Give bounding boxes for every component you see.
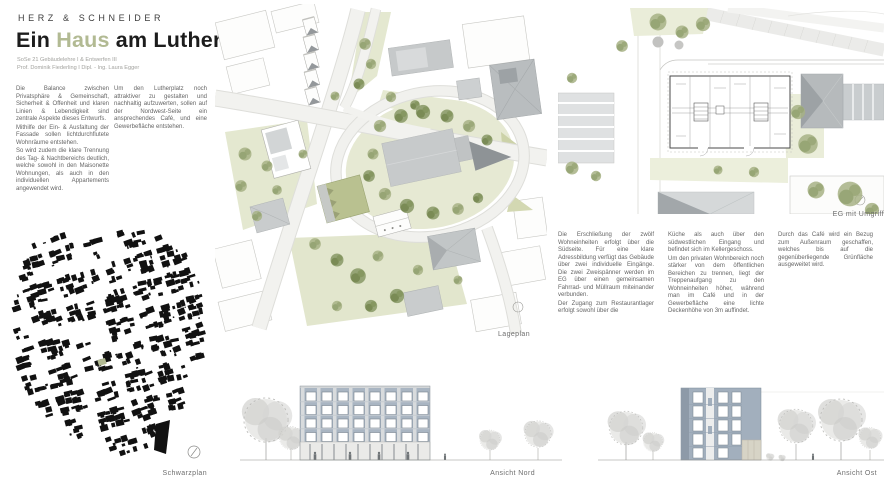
viaduct (688, 8, 884, 64)
figure-ground-label: Schwarzplan (60, 470, 207, 477)
presentation-board: HERZ & SCHNEIDER Ein Haus am Lutherplatz… (0, 0, 888, 500)
striped-building (558, 93, 614, 163)
elevation-north-figure (238, 372, 568, 468)
paragraph: Die Balance zwischen Privatsphäre & Geme… (16, 86, 109, 124)
title-part1: Ein (16, 28, 56, 52)
floorplan-label: EG mit Umgriff (700, 211, 884, 218)
paragraph: Durch das Café wird ein Bezug zum Außenr… (778, 232, 873, 270)
paragraph: Um den privaten Wohnbereich noch stärker… (668, 256, 764, 316)
title-accent-word: Haus (56, 28, 109, 52)
course-subtitle: SoSe 21 Gebäudelehre I & Entwerfen III P… (17, 56, 139, 73)
floorplan-figure (558, 8, 884, 214)
description-column-1: Die Erschließung der zwölf Wohneinheiten… (558, 232, 654, 317)
neighbour-church (801, 74, 884, 128)
window-strip-a (693, 392, 703, 458)
studio-name: HERZ & SCHNEIDER (18, 13, 164, 23)
elevation-north-label: Ansicht Nord (335, 470, 535, 477)
north-arrow (188, 446, 200, 458)
figure-ground-blocks (12, 230, 206, 457)
window-strip-b (718, 392, 728, 458)
elevation-north-building (300, 386, 446, 460)
paragraph: Küche als auch über den südwestlichen Ei… (668, 232, 764, 255)
paragraph: Der Zugang zum Restaurantlager erfolgt s… (558, 301, 654, 316)
paragraph: Um den Lutherplatz noch attraktiver zu g… (114, 86, 207, 131)
ground-floor-plan (668, 72, 792, 156)
subtitle-line-2: Prof. Dominik Fiederling I Dipl. - Ing. … (17, 64, 139, 72)
site-highlight (97, 358, 106, 366)
description-column-2: Küche als auch über den südwestlichen Ei… (668, 232, 764, 317)
subtitle-line-1: SoSe 21 Gebäudelehre I & Entwerfen III (17, 56, 139, 64)
intro-column-1: Die Balance zwischen Privatsphäre & Geme… (16, 86, 109, 194)
paragraph: So wird zudem die klare Trennung des Tag… (16, 148, 109, 193)
intro-column-2: Um den Lutherplatz noch attraktiver zu g… (114, 86, 207, 132)
elevation-east-figure (598, 372, 884, 468)
siteplan-figure (215, 4, 547, 334)
paragraph: Mithilfe der Ein- & Ausfaltung der Fassa… (16, 125, 109, 148)
figure-ground-figure (8, 228, 213, 468)
large-black-building (154, 420, 170, 454)
elevation-east-label: Ansicht Ost (677, 470, 877, 477)
paragraph: Die Erschließung der zwölf Wohneinheiten… (558, 232, 654, 300)
siteplan-label: Lageplan (300, 331, 530, 338)
description-column-3: Durch das Café wird ein Bezug zum Außenr… (778, 232, 873, 271)
